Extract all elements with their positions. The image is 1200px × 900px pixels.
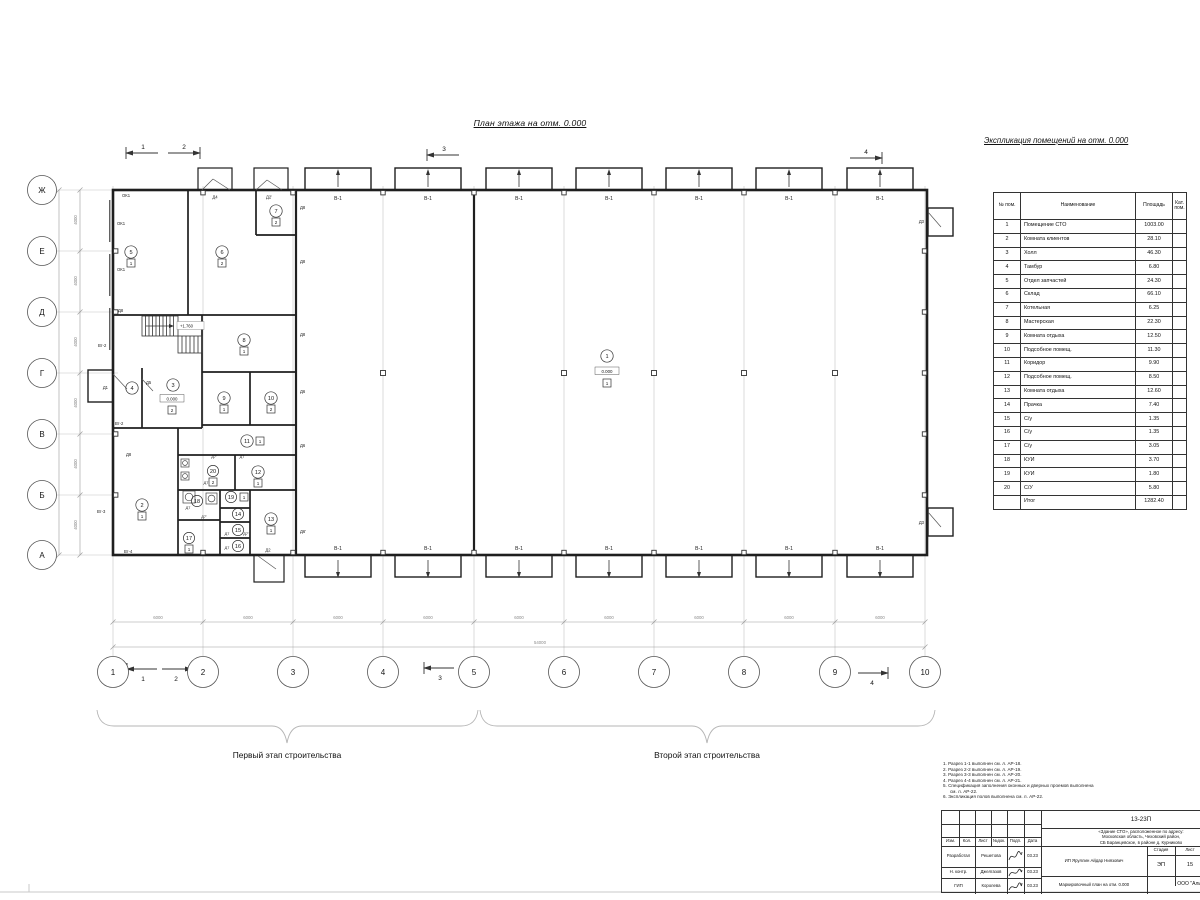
floor-tag: 1: [243, 495, 246, 500]
axis-label: 5: [472, 668, 477, 677]
section-label: 1: [141, 144, 145, 151]
cell-name: Котельная: [1021, 302, 1136, 316]
cell-cat: [1173, 344, 1187, 358]
cell-cat: [1173, 468, 1187, 482]
table-row: 1Помещение СТО1003.00: [994, 220, 1187, 234]
notes-block: 1. Разрез 1-1 выполнен см. л. АР-18. 2. …: [943, 761, 1100, 800]
dim-label: 6000: [333, 615, 343, 620]
cell-name: Подсобное помещ.: [1021, 344, 1136, 358]
cell-num: 13: [994, 385, 1021, 399]
cell-num: 1: [994, 220, 1021, 234]
col-header-name: Наименование: [1021, 193, 1136, 220]
cell-num: 11: [994, 357, 1021, 371]
cell-name: Прачка: [1021, 399, 1136, 413]
cell-cat: [1173, 454, 1187, 468]
cell-num: [994, 495, 1021, 509]
gate-label: В-1: [424, 196, 432, 202]
cell-cat: [1173, 302, 1187, 316]
cell-cat: [1173, 385, 1187, 399]
tb-col-podp: Подп.: [1007, 837, 1024, 846]
room-number: 7: [274, 209, 277, 215]
tb-name: Королева: [975, 878, 1007, 894]
signature-icon: [1008, 880, 1023, 893]
cell-area: 28.10: [1136, 233, 1173, 247]
cell-area: 8.50: [1136, 371, 1173, 385]
floor-tag: 1: [606, 381, 609, 386]
cell-area: 22.30: [1136, 316, 1173, 330]
room-number: 1: [605, 354, 608, 360]
tb-name: Джелгазов: [975, 867, 1007, 878]
door-label: Д7: [240, 455, 245, 459]
cell-name: Отдел запчастей: [1021, 275, 1136, 289]
floor-tag: 2: [221, 261, 224, 266]
col-header-area: Площадь: [1136, 193, 1173, 220]
door-label: Д6: [300, 443, 306, 448]
gate-label: В-1: [424, 546, 432, 552]
cell-area: 24.30: [1136, 275, 1173, 289]
floor-tag: 1: [141, 514, 144, 519]
tb-date: 03.23: [1024, 867, 1041, 878]
dim-label: 4000: [73, 459, 78, 469]
building-walls: [113, 190, 927, 555]
axis-label: 1: [111, 668, 116, 677]
cell-total-label: Итог: [1021, 495, 1136, 509]
tb-col-kol: Кол.: [959, 837, 975, 846]
level-mark: 0.000: [602, 369, 614, 374]
gate-arrows-top: [336, 169, 882, 187]
cell-name: КУИ: [1021, 468, 1136, 482]
signature-icon: [1008, 850, 1023, 863]
tb-sheet-value: 15: [1175, 855, 1200, 876]
table-row: 10Подсобное помещ.11.30: [994, 344, 1187, 358]
tb-col-data: Дата: [1024, 837, 1041, 846]
room-number: 6: [220, 250, 223, 256]
room-number: 2: [140, 503, 143, 509]
door-label: Д3: [919, 520, 925, 525]
cell-name: С/у: [1021, 413, 1136, 427]
axis-label: 10: [921, 668, 930, 677]
axis-label: В: [39, 430, 44, 439]
tb-signature: [1007, 867, 1024, 878]
signature-icon: [1008, 868, 1023, 878]
table-row: 6Склад66.10: [994, 288, 1187, 302]
cell-area: 1.35: [1136, 426, 1173, 440]
cell-name: Комната клиентов: [1021, 233, 1136, 247]
tb-col-list: Лист: [975, 837, 991, 846]
table-row: 20С/У5.80: [994, 482, 1187, 496]
cell-area: 3.05: [1136, 440, 1173, 454]
gate-label: В-1: [605, 546, 613, 552]
section-label: 3: [438, 675, 442, 682]
gate-arrows-bottom: [336, 560, 882, 578]
axis-label: 4: [381, 668, 386, 677]
note-line: 6. Экспликация полов выполнена см. л. АР…: [943, 794, 1100, 800]
table-row: 2Комната клиентов28.10: [994, 233, 1187, 247]
floor-tag: 1: [259, 439, 262, 444]
vent-label: Вт-4: [124, 549, 133, 554]
table-row: 4Тамбур6.80: [994, 261, 1187, 275]
door-label: Д5: [146, 380, 152, 385]
floor-tag: 2: [275, 220, 278, 225]
tb-signature: [1007, 846, 1024, 867]
tb-plan-name: Маркировочный план на отм. 0.000: [1041, 876, 1147, 894]
door-label: Д8: [126, 452, 132, 457]
opening-labels: ОК1 ОК1 ОК1 Д4 Д2' Д8 Д8 Д8 Д6 Д6 Д6' Д8…: [97, 193, 925, 554]
dim-label: 6000: [875, 615, 885, 620]
table-row: 7Котельная6.25: [994, 302, 1187, 316]
floor-tag: 1: [130, 261, 133, 266]
room-number: 11: [244, 439, 250, 445]
floor-tag: 2: [171, 408, 174, 413]
cell-cat: [1173, 357, 1187, 371]
gate-label: В-1: [785, 546, 793, 552]
table-row: 11Коридор9.90: [994, 357, 1187, 371]
cell-num: 7: [994, 302, 1021, 316]
room-number: 8: [242, 338, 245, 344]
door-label: Д6: [300, 389, 306, 394]
cell-name: Подсобное помещ.: [1021, 371, 1136, 385]
axis-label: Д: [39, 308, 45, 317]
cell-total-area: 1282.40: [1136, 495, 1173, 509]
cell-area: 1.80: [1136, 468, 1173, 482]
door-label: Д7: [204, 481, 209, 485]
table-row: 9Комната отдыха12.50: [994, 330, 1187, 344]
col-header-num: № пом.: [994, 193, 1021, 220]
cell-cat: [1173, 261, 1187, 275]
gate-labels-bottom: В-1 В-1 В-1 В-1 В-1 В-1 В-1: [334, 546, 884, 552]
vent-label: Вт-2: [115, 421, 124, 426]
door-label: Д2: [265, 548, 271, 553]
cell-cat: [1173, 316, 1187, 330]
door-label: Д8: [300, 205, 306, 210]
room-number: 12: [255, 470, 261, 476]
table-row: 15С/у1.35: [994, 413, 1187, 427]
cell-name: Склад: [1021, 288, 1136, 302]
cell-name: С/У: [1021, 482, 1136, 496]
gate-labels-top: В-1 В-1 В-1 В-1 В-1 В-1 В-1: [334, 196, 884, 202]
room-number: 13: [268, 517, 274, 523]
tb-stage-header: Стадия: [1147, 846, 1175, 855]
cell-cat: [1173, 482, 1187, 496]
axis-bubble-labels: 1 2 3 4 5 6 7 8 9 10 Ж Е Д Г В Б А: [38, 186, 930, 677]
cell-name: Помещение СТО: [1021, 220, 1136, 234]
tb-date: 03.23: [1024, 846, 1041, 867]
cell-num: 9: [994, 330, 1021, 344]
dim-total-label: 54000: [534, 640, 547, 645]
cell-cat: [1173, 275, 1187, 289]
table-row: 18КУИ3.70: [994, 454, 1187, 468]
tb-company: ООО "Альянс": [1147, 876, 1200, 894]
cell-num: 10: [994, 344, 1021, 358]
cell-name: Коридор: [1021, 357, 1136, 371]
vent-label: Вт-2: [98, 343, 107, 348]
cell-cat: [1173, 247, 1187, 261]
tb-col-izm: Изм.: [942, 837, 959, 846]
dim-label: 4000: [73, 276, 78, 286]
floor-tag: 1: [188, 547, 191, 552]
door-label: Д2': [266, 195, 272, 200]
floor-tag: 2: [270, 407, 273, 412]
cell-num: 18: [994, 454, 1021, 468]
door-label: Д7': [201, 515, 207, 519]
tb-stage-value: ЭП: [1147, 855, 1175, 876]
tb-role: Н. контр.: [942, 867, 975, 878]
axis-label: 6: [562, 668, 567, 677]
stage-one-label: Первый этап строительства: [177, 750, 397, 760]
door-label: Д6': [300, 529, 306, 534]
axis-label: 8: [742, 668, 747, 677]
cell-num: 4: [994, 261, 1021, 275]
col-header-cat: Кат. пом.: [1173, 193, 1187, 220]
door-swings: [113, 179, 941, 569]
tb-name: Решетова: [975, 846, 1007, 867]
dim-label: 4000: [73, 520, 78, 530]
table-row: 17С/у3.05: [994, 440, 1187, 454]
cell-area: 6.80: [1136, 261, 1173, 275]
cell-area: 12.50: [1136, 330, 1173, 344]
cell-num: 12: [994, 371, 1021, 385]
cell-name: КУИ: [1021, 454, 1136, 468]
door-label: Д8: [300, 259, 306, 264]
door-label: Д7: [225, 532, 230, 536]
cell-area: 46.30: [1136, 247, 1173, 261]
cell-cat: [1173, 495, 1187, 509]
section-marks: [125, 147, 889, 679]
stage-braces: [97, 710, 935, 743]
axis-label: Б: [39, 491, 44, 500]
level-mark: 0.000: [167, 397, 179, 402]
gate-label: В-1: [515, 546, 523, 552]
gate-label: В-1: [334, 546, 342, 552]
cell-num: 19: [994, 468, 1021, 482]
axis-label: Е: [39, 247, 44, 256]
vent-label: Вт-3: [97, 509, 106, 514]
dim-label: 6000: [784, 615, 794, 620]
cell-cat: [1173, 440, 1187, 454]
table-total-row: Итог1282.40: [994, 495, 1187, 509]
door-label: Д7: [186, 506, 191, 510]
cell-name: С/у: [1021, 426, 1136, 440]
cell-name: Тамбур: [1021, 261, 1136, 275]
cell-cat: [1173, 426, 1187, 440]
door-label: Д3: [919, 219, 925, 224]
room-number: 3: [171, 383, 174, 389]
cell-cat: [1173, 233, 1187, 247]
cell-area: 1003.00: [1136, 220, 1173, 234]
dim-label: 4000: [73, 215, 78, 225]
tb-signature: [1007, 878, 1024, 894]
room-number: 20: [210, 469, 216, 475]
gate-label: В-1: [785, 196, 793, 202]
gate-label: В-1: [876, 196, 884, 202]
axis-bubbles: [28, 176, 941, 688]
cell-area: 1.35: [1136, 413, 1173, 427]
cell-area: 3.70: [1136, 454, 1173, 468]
tb-sheet-header: Лист: [1175, 846, 1200, 855]
cell-area: 5.80: [1136, 482, 1173, 496]
cell-name: Мастерская: [1021, 316, 1136, 330]
room-number: 15: [235, 528, 241, 534]
cell-num: 20: [994, 482, 1021, 496]
dim-label: 6000: [243, 615, 253, 620]
floor-tag: 2: [212, 480, 215, 485]
tb-role: Разработал: [942, 846, 975, 867]
cell-num: 2: [994, 233, 1021, 247]
drawing-sheet: 6000 6000 6000 6000 6000 6000 6000 6000 …: [0, 0, 1200, 900]
room-number: 4: [130, 386, 133, 392]
cell-num: 17: [994, 440, 1021, 454]
room-number: 19: [228, 495, 234, 501]
table-row: 14Прачка7.40: [994, 399, 1187, 413]
explication-title: Экспликация помещений на отм. 0.000: [984, 136, 1128, 145]
room-number: 18: [194, 499, 200, 505]
section-label: 4: [864, 149, 868, 156]
window-label: ОК1: [117, 221, 126, 226]
section-label: 1: [141, 676, 145, 683]
axis-label: Ж: [38, 186, 46, 195]
cell-area: 12.60: [1136, 385, 1173, 399]
cell-cat: [1173, 288, 1187, 302]
floor-tag: 1: [257, 481, 260, 486]
table-row: 16С/у1.35: [994, 426, 1187, 440]
gates-bottom: [254, 555, 913, 582]
section-label: 2: [174, 676, 178, 683]
table-row: 8Мастерская22.30: [994, 316, 1187, 330]
door-label: Д7: [225, 546, 230, 550]
section-label: 3: [442, 146, 446, 153]
table-row: 19КУИ1.80: [994, 468, 1187, 482]
door-label: Д7': [243, 532, 249, 536]
table-row: 12Подсобное помещ.8.50: [994, 371, 1187, 385]
cell-area: 6.25: [1136, 302, 1173, 316]
tb-date: 03.23: [1024, 878, 1041, 894]
room-number: 16: [235, 544, 241, 550]
tb-doc-number: 13-23П: [1041, 811, 1200, 828]
cell-num: 8: [994, 316, 1021, 330]
room-number: 17: [186, 536, 192, 542]
stair-level-label: +1.760: [180, 324, 194, 329]
cell-num: 3: [994, 247, 1021, 261]
cell-name: С/у: [1021, 440, 1136, 454]
cell-area: 7.40: [1136, 399, 1173, 413]
gate-label: В-1: [334, 196, 342, 202]
section-label: 4: [870, 680, 874, 687]
dim-label: 4000: [73, 337, 78, 347]
cell-cat: [1173, 330, 1187, 344]
title-block: Изм. Кол. Лист №док. Подп. Дата Разработ…: [941, 810, 1200, 893]
dim-label: 6000: [514, 615, 524, 620]
room-number: 10: [268, 396, 274, 402]
cell-area: 66.10: [1136, 288, 1173, 302]
door-label: Д8: [300, 332, 306, 337]
floor-tag: 1: [223, 407, 226, 412]
stage-two-label: Второй этап строительства: [597, 750, 817, 760]
explication-table: № пом. Наименование Площадь Кат. пом. 1П…: [993, 192, 1187, 510]
section-label: 2: [182, 144, 186, 151]
door-label: Д4: [212, 195, 218, 200]
axis-label: 2: [201, 668, 206, 677]
plan-title: План этажа на отм. 0.000: [430, 118, 630, 128]
cell-area: 11.30: [1136, 344, 1173, 358]
cell-num: 6: [994, 288, 1021, 302]
axis-label: 7: [652, 668, 657, 677]
window-label: ОК1: [117, 267, 126, 272]
table-header-row: № пом. Наименование Площадь Кат. пом.: [994, 193, 1187, 220]
dim-label: 6000: [694, 615, 704, 620]
cell-name: Комната отдыха: [1021, 330, 1136, 344]
axis-label: 3: [291, 668, 296, 677]
dimension-labels: 6000 6000 6000 6000 6000 6000 6000 6000 …: [52, 215, 885, 645]
door-label: Д8: [118, 308, 124, 313]
cell-cat: [1173, 413, 1187, 427]
cell-num: 15: [994, 413, 1021, 427]
gate-label: В-1: [695, 546, 703, 552]
axis-label: Г: [40, 369, 45, 378]
table-row: 13Комната отдыха12.60: [994, 385, 1187, 399]
room-number: 9: [222, 396, 225, 402]
gate-label: В-1: [876, 546, 884, 552]
gates-top: [198, 168, 913, 190]
dim-label: 6000: [423, 615, 433, 620]
table-row: 3Холл46.30: [994, 247, 1187, 261]
window-label: ОК1: [122, 193, 131, 198]
door-label: Д1: [103, 385, 109, 390]
gate-label: В-1: [515, 196, 523, 202]
room-number: 14: [235, 512, 241, 518]
cell-cat: [1173, 220, 1187, 234]
dim-label: 6000: [153, 615, 163, 620]
cell-name: Комната отдыха: [1021, 385, 1136, 399]
cell-name: Холл: [1021, 247, 1136, 261]
cell-cat: [1173, 371, 1187, 385]
door-label: Д7': [211, 455, 217, 459]
dim-label: 6000: [604, 615, 614, 620]
axis-label: А: [39, 551, 45, 560]
room-number: 5: [129, 250, 132, 256]
cell-num: 16: [994, 426, 1021, 440]
cell-area: 9.90: [1136, 357, 1173, 371]
tb-object-line: СБ Баранцевское, в районе д. Курниково: [1100, 840, 1182, 845]
cell-num: 5: [994, 275, 1021, 289]
tb-col-ndoc: №док.: [991, 837, 1007, 846]
tb-object-address: «Здание СТО», расположенное по адресу: М…: [1041, 828, 1200, 846]
cell-num: 14: [994, 399, 1021, 413]
dim-label: 4000: [73, 398, 78, 408]
gate-label: В-1: [695, 196, 703, 202]
cell-cat: [1173, 399, 1187, 413]
tb-client: ИП Яруллин Айдар Ниязович: [1041, 846, 1147, 876]
gate-label: В-1: [605, 196, 613, 202]
note-line: 5. Спецификация заполнения оконных и две…: [943, 783, 1100, 794]
section-mark-labels: 1 2 3 4 1 2 3 4: [141, 144, 874, 687]
table-row: 5Отдел запчастей24.30: [994, 275, 1187, 289]
floor-tag: 1: [243, 349, 246, 354]
tb-role: ГИП: [942, 878, 975, 894]
axis-label: 9: [833, 668, 838, 677]
floor-tag: 1: [270, 528, 273, 533]
